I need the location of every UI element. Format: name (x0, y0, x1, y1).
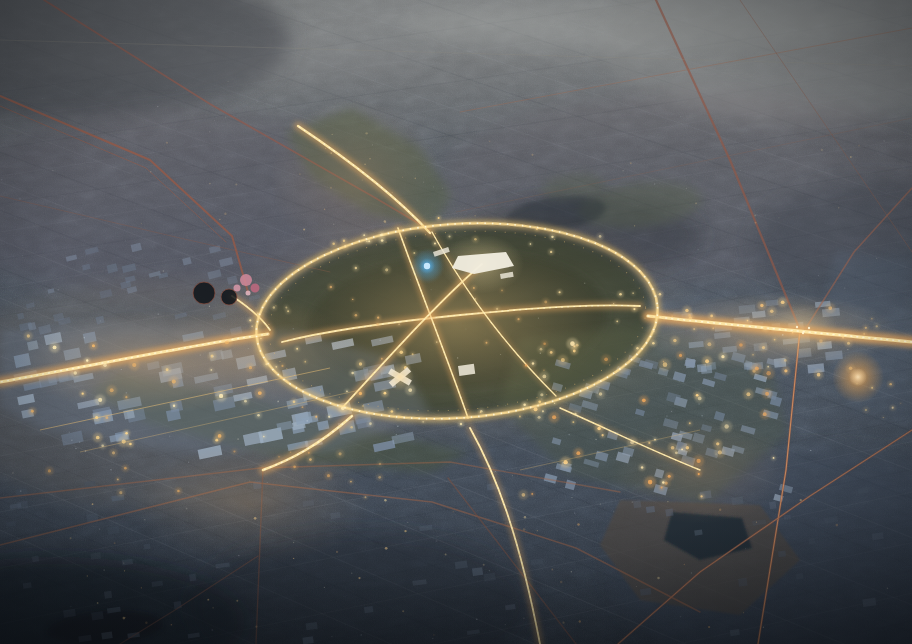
edge-vignette (0, 0, 912, 644)
aerial-city-render (0, 0, 912, 644)
city-render-canvas (0, 0, 912, 644)
